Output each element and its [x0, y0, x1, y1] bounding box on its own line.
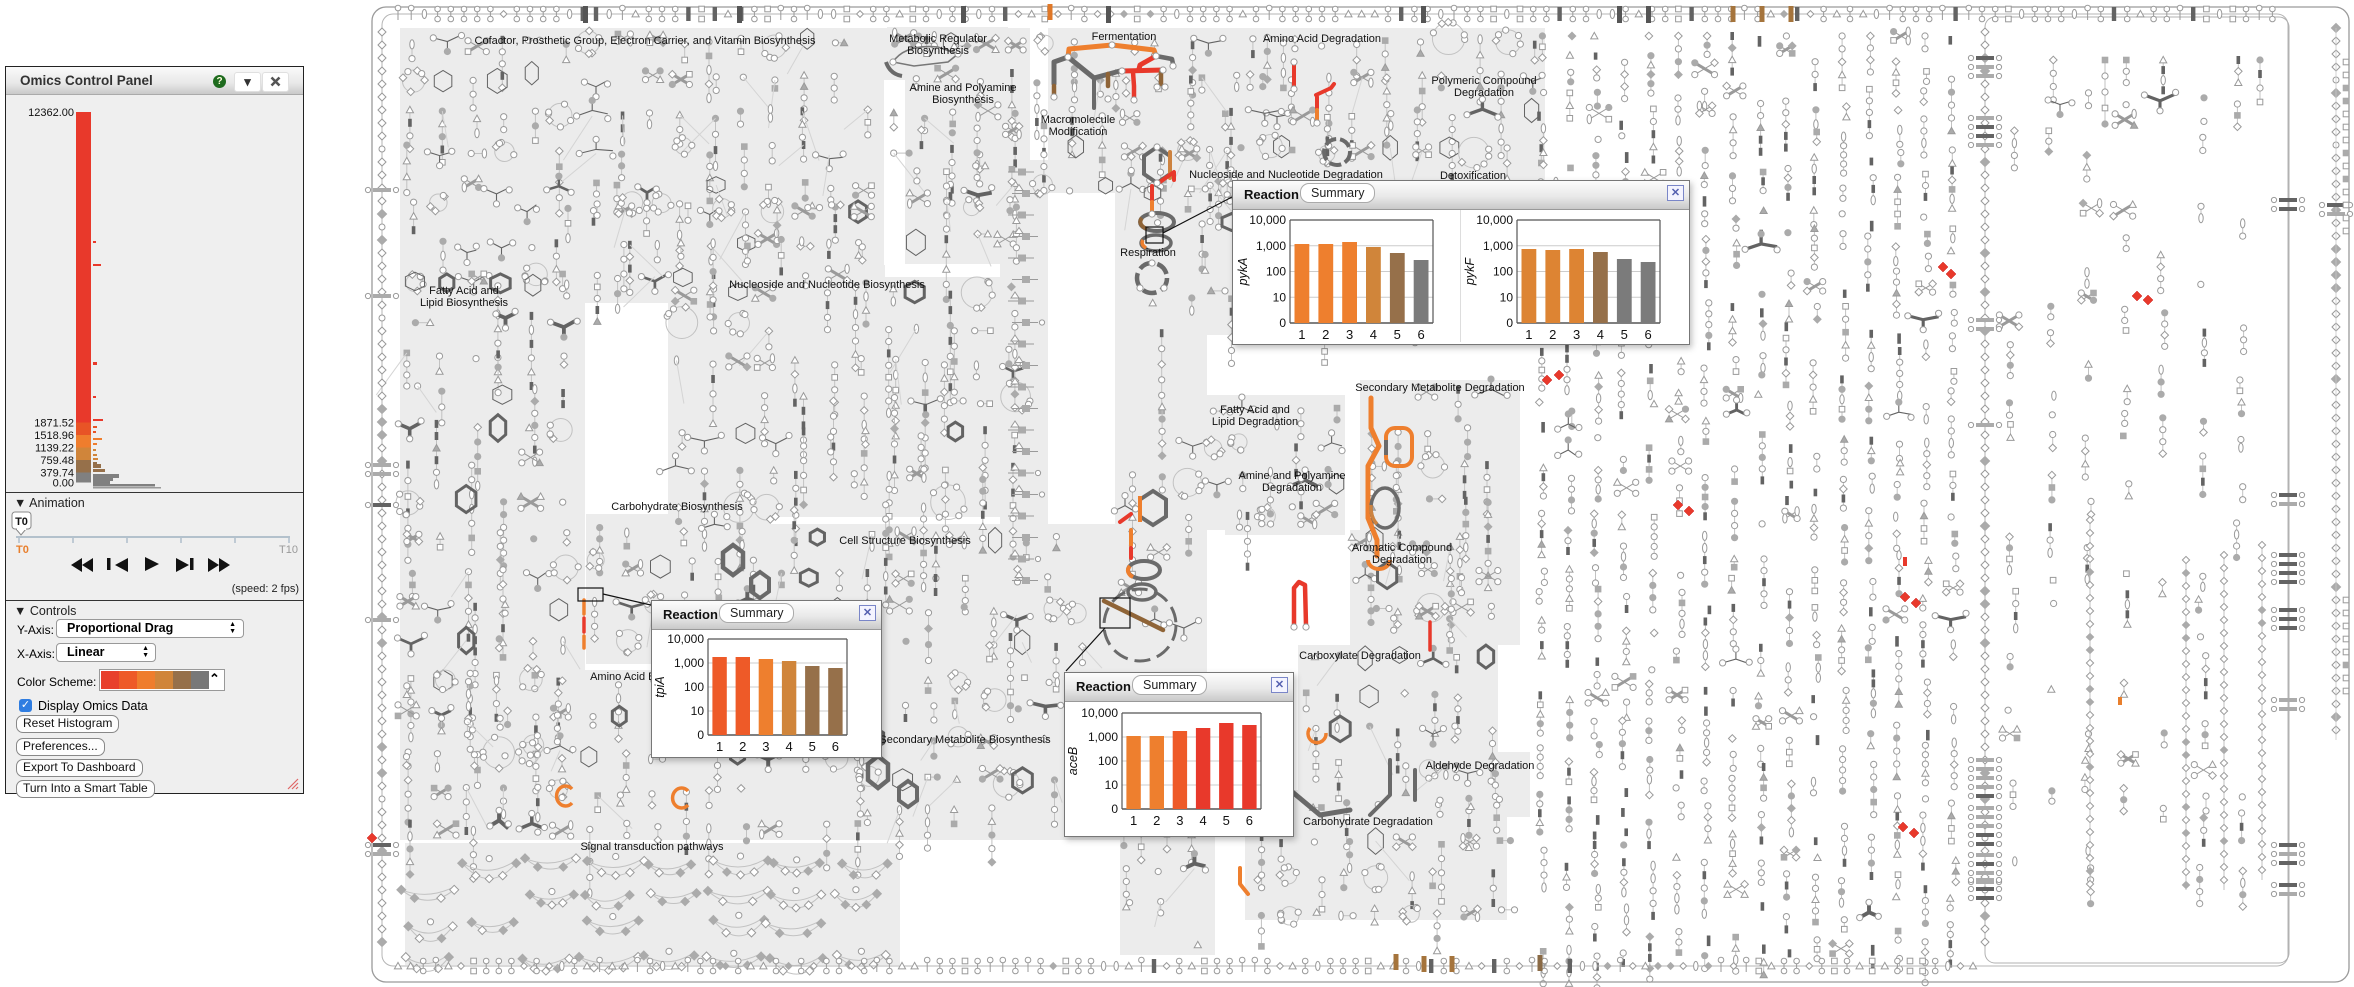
svg-text:Amino Acid Degradation: Amino Acid Degradation — [1263, 33, 1381, 45]
svg-text:Fatty Acid and: Fatty Acid and — [429, 285, 499, 297]
svg-text:Cell Structure Biosynthesis: Cell Structure Biosynthesis — [839, 535, 971, 547]
svg-text:Cofactor, Prosthetic Group, El: Cofactor, Prosthetic Group, Electron Car… — [475, 35, 816, 47]
svg-text:10,000: 10,000 — [1249, 213, 1286, 227]
svg-text:Amine and Polyamine: Amine and Polyamine — [909, 82, 1016, 94]
svg-text:Macromolecule: Macromolecule — [1041, 114, 1116, 126]
svg-text:Carboxylate Degradation: Carboxylate Degradation — [1299, 650, 1421, 662]
svg-text:Fatty Acid and: Fatty Acid and — [1220, 404, 1290, 416]
svg-text:Carbohydrate Degradation: Carbohydrate Degradation — [1303, 816, 1433, 828]
svg-text:Biosynthesis: Biosynthesis — [907, 45, 969, 57]
svg-text:759.48: 759.48 — [40, 455, 74, 467]
svg-text:T10: T10 — [279, 544, 298, 556]
svg-text:Lipid Biosynthesis: Lipid Biosynthesis — [420, 297, 509, 309]
svg-text:Respiration: Respiration — [1120, 247, 1176, 259]
svg-text:Degradation: Degradation — [1454, 87, 1514, 99]
svg-text:0.00: 0.00 — [53, 478, 74, 490]
svg-text:1518.96: 1518.96 — [34, 430, 74, 442]
svg-text:Degradation: Degradation — [1372, 554, 1432, 566]
svg-text:T0: T0 — [15, 516, 28, 528]
svg-text:Metabolic Regulator: Metabolic Regulator — [889, 33, 987, 45]
svg-text:Biosynthesis: Biosynthesis — [932, 94, 994, 106]
svg-text:Carbohydrate Biosynthesis: Carbohydrate Biosynthesis — [611, 501, 743, 513]
svg-text:12362.00: 12362.00 — [28, 107, 74, 119]
svg-text:1139.22: 1139.22 — [35, 443, 74, 455]
svg-text:Nucleoside and Nucleotide Bios: Nucleoside and Nucleotide Biosynthesis — [729, 279, 925, 291]
svg-text:Aldehyde Degradation: Aldehyde Degradation — [1426, 760, 1535, 772]
svg-text:Secondary Metabolite Biosynthe: Secondary Metabolite Biosynthesis — [879, 734, 1051, 746]
svg-text:Polymeric Compound: Polymeric Compound — [1431, 75, 1536, 87]
svg-text:Secondary Metabolite Degradati: Secondary Metabolite Degradation — [1355, 382, 1524, 394]
svg-text:1871.52: 1871.52 — [34, 418, 74, 430]
svg-text:Signal transduction pathways: Signal transduction pathways — [580, 841, 724, 853]
svg-text:Aromatic Compound: Aromatic Compound — [1352, 542, 1452, 554]
svg-text:Lipid Degradation: Lipid Degradation — [1212, 416, 1298, 428]
svg-text:Modification: Modification — [1049, 126, 1108, 138]
svg-text:Fermentation: Fermentation — [1092, 31, 1157, 43]
svg-text:T0: T0 — [16, 544, 29, 556]
svg-text:Degradation: Degradation — [1262, 482, 1322, 494]
svg-text:Amine and Polyamine: Amine and Polyamine — [1238, 470, 1345, 482]
